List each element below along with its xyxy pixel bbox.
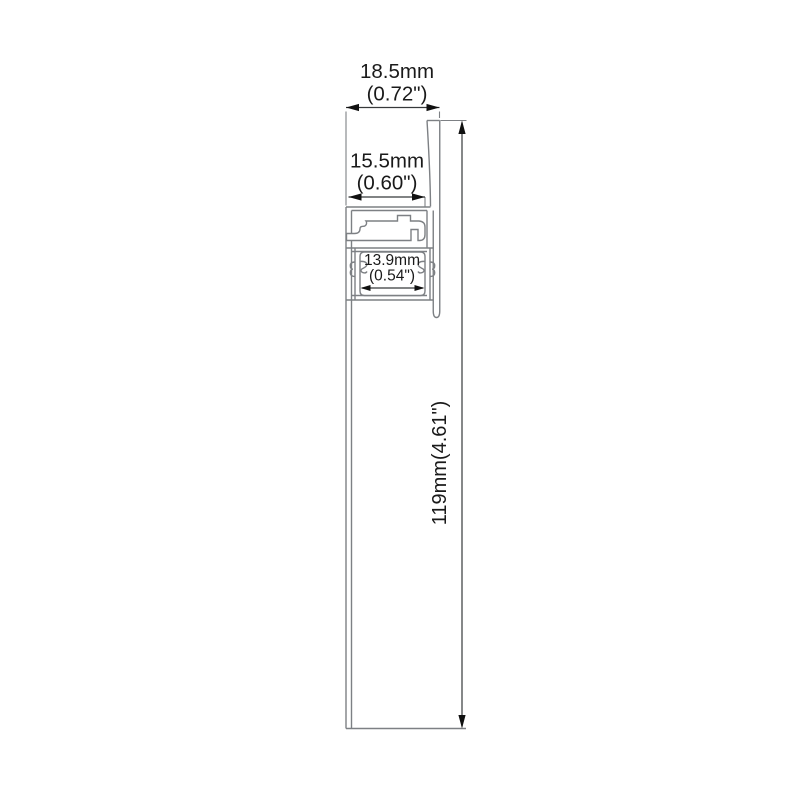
profile-drawing: 18.5mm (0.72") 15.5mm (0.60") 13.9mm (0.…	[0, 0, 800, 800]
dim-inner-width-inch-label: (0.60")	[357, 172, 418, 195]
mounting-fin	[427, 121, 440, 318]
dim-channel-width-inch-label: (0.54")	[369, 268, 415, 285]
arrow-right-icon	[427, 104, 440, 111]
arrow-up-icon	[458, 121, 465, 135]
dim-inner-width-mm-label: 15.5mm	[350, 150, 424, 173]
arrow-left-icon	[346, 104, 359, 111]
dim-overall-width-mm-label: 18.5mm	[360, 60, 434, 83]
top-cap	[346, 207, 431, 211]
clip-slot	[347, 216, 426, 241]
dimension-total-height: 119mm(4.61")	[429, 121, 467, 729]
dimension-inner-width: 15.5mm (0.60")	[349, 150, 426, 207]
dim-overall-width-inch-label: (0.72")	[367, 83, 428, 106]
dim-total-height-label: 119mm(4.61")	[429, 401, 451, 526]
dim-channel-width-mm-label: 13.9mm	[364, 252, 420, 269]
clip-ear-right	[430, 262, 435, 277]
arrow-down-icon	[458, 715, 465, 729]
